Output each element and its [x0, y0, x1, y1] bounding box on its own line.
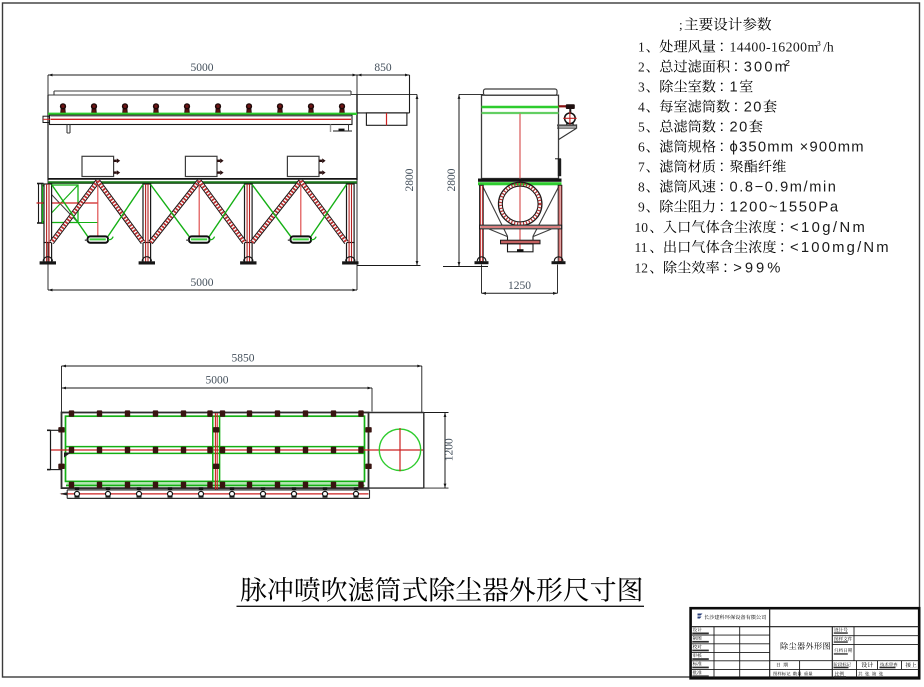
svg-text:8: 8: [638, 180, 645, 195]
svg-text:1200~1550Pa: 1200~1550Pa: [730, 200, 840, 216]
svg-text:5000: 5000: [206, 375, 229, 387]
svg-text:0.8−0.9m/min: 0.8−0.9m/min: [730, 180, 838, 196]
svg-text:1: 1: [638, 40, 645, 55]
svg-text:20: 20: [744, 100, 763, 116]
svg-text:3: 3: [638, 80, 645, 95]
svg-text:20: 20: [730, 120, 749, 136]
svg-text:14400-16200m: 14400-16200m: [730, 40, 819, 55]
svg-text:4: 4: [638, 100, 645, 115]
svg-text:850: 850: [374, 62, 392, 74]
svg-text:<100mg/Nm: <100mg/Nm: [790, 240, 891, 256]
svg-text:2: 2: [638, 60, 645, 75]
svg-text:9: 9: [638, 200, 645, 215]
svg-text:1200: 1200: [444, 438, 456, 461]
svg-text:1250: 1250: [508, 280, 531, 292]
svg-text:2800: 2800: [404, 168, 416, 191]
svg-text:5850: 5850: [232, 353, 255, 365]
svg-text:>99%: >99%: [733, 261, 783, 277]
svg-text:<10g/Nm: <10g/Nm: [790, 220, 867, 236]
svg-text:/h: /h: [823, 40, 834, 55]
svg-text:6: 6: [638, 140, 645, 155]
svg-text:7: 7: [638, 160, 645, 175]
svg-text:³: ³: [817, 39, 821, 53]
svg-text:5000: 5000: [191, 277, 214, 289]
svg-text:12: 12: [635, 261, 649, 276]
svg-text:5: 5: [638, 120, 645, 135]
svg-text:300m: 300m: [744, 60, 789, 76]
svg-text:1: 1: [730, 80, 740, 96]
svg-text:10: 10: [635, 220, 649, 235]
svg-text:²: ²: [785, 58, 790, 74]
svg-text:;: ;: [679, 17, 683, 32]
svg-text:5000: 5000: [191, 62, 214, 74]
svg-text:2800: 2800: [446, 168, 458, 191]
svg-text:11: 11: [635, 240, 648, 255]
svg-text:ϕ350mm ×900mm: ϕ350mm ×900mm: [730, 140, 865, 156]
